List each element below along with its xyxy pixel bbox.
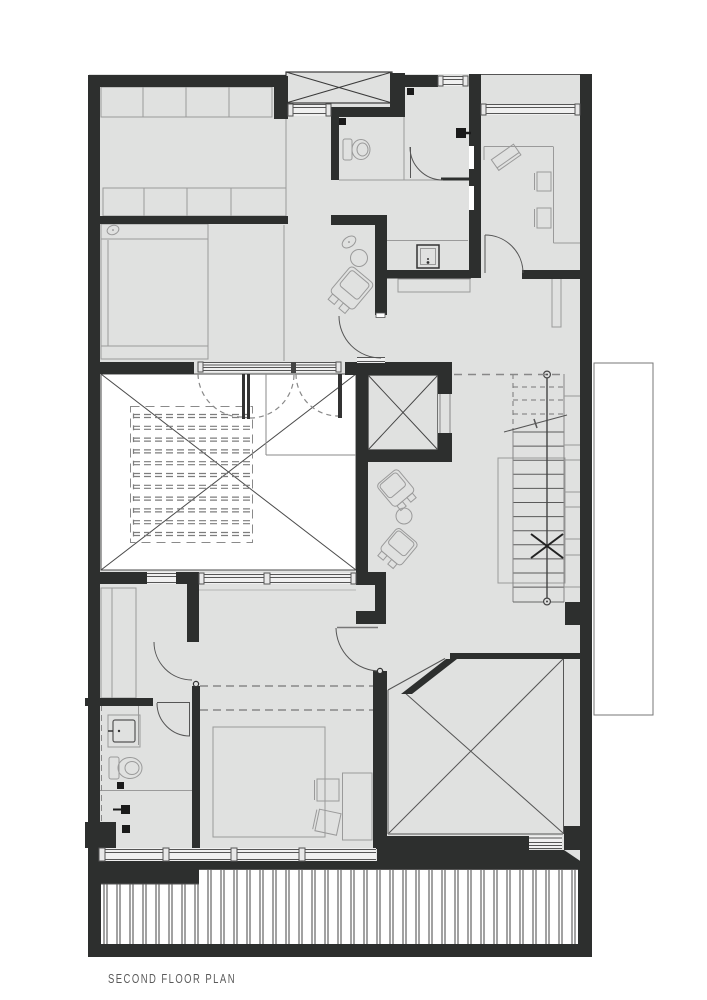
svg-text:SECOND FLOOR PLAN: SECOND FLOOR PLAN [108, 971, 236, 986]
